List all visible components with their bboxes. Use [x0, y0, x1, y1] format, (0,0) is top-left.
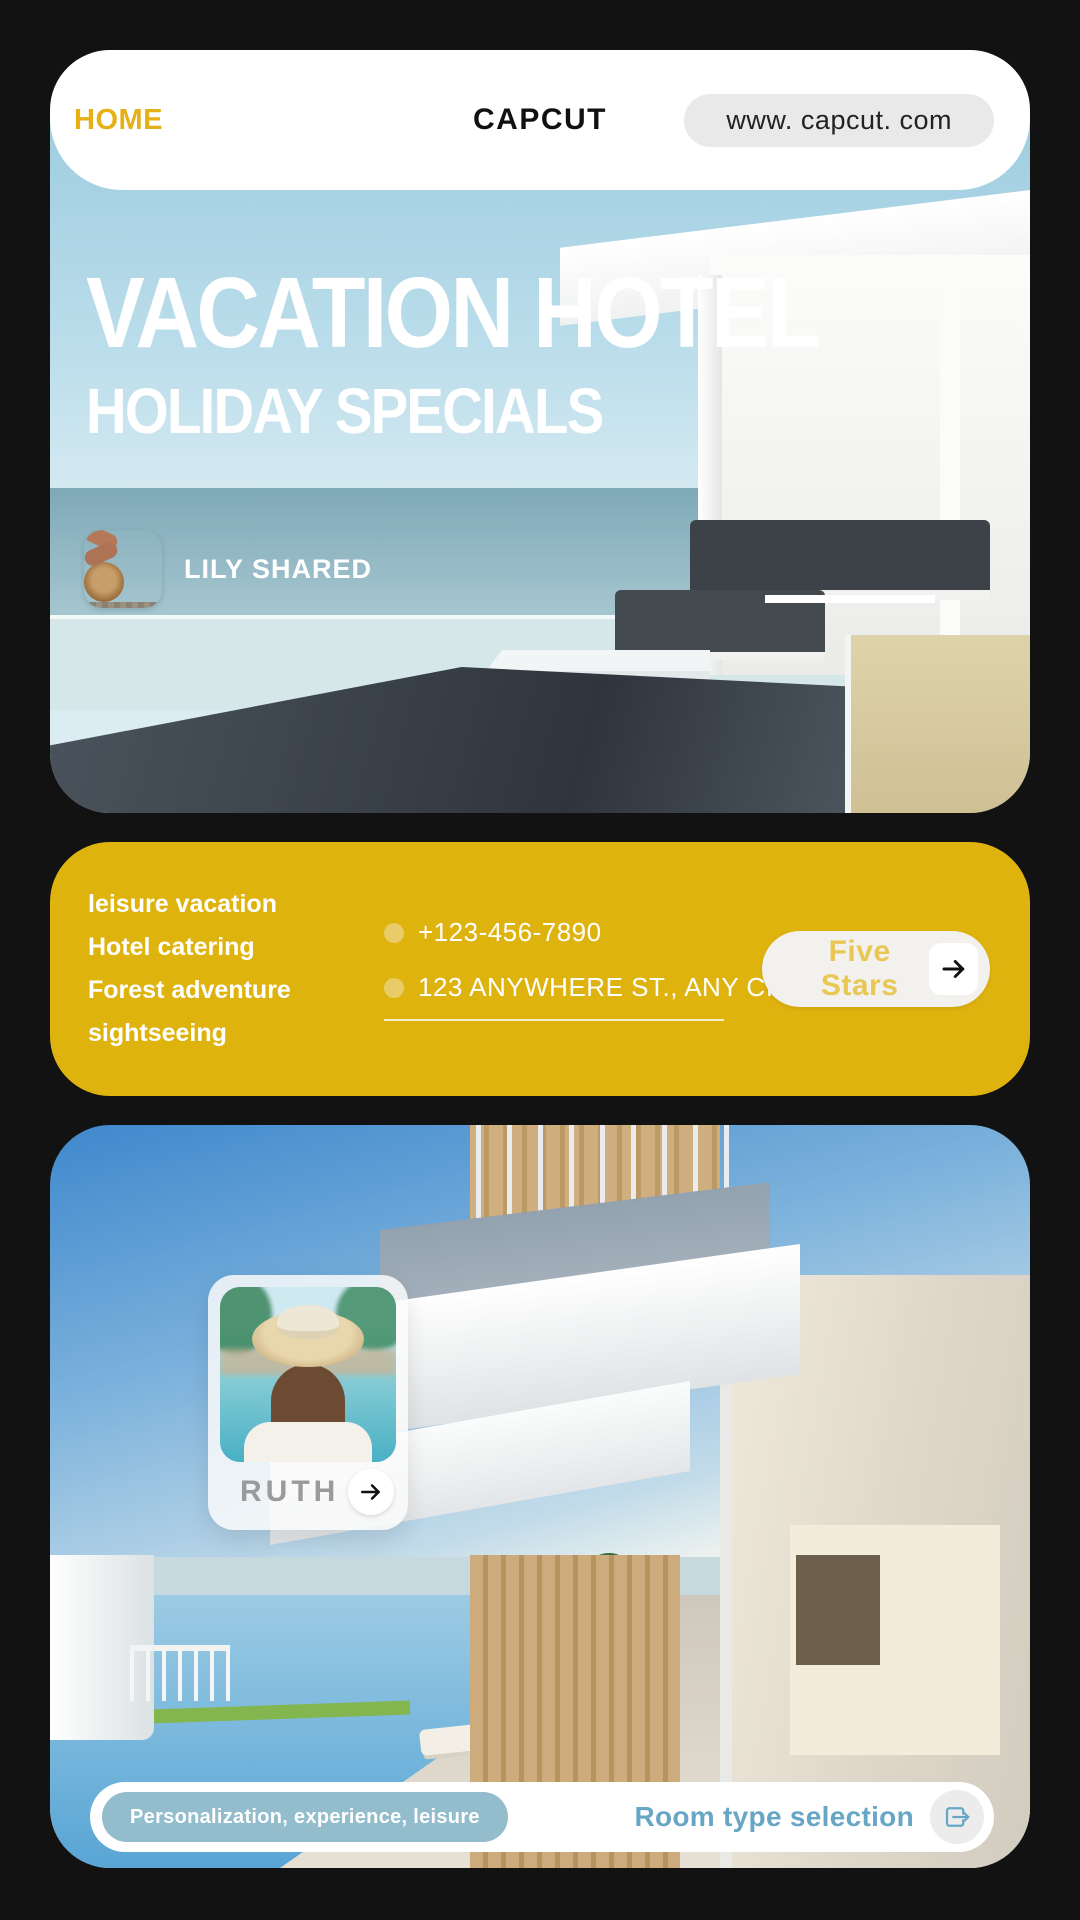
phone-number: +123-456-7890	[418, 917, 602, 948]
arrow-right-icon	[929, 943, 978, 995]
shared-by-label: LILY SHARED	[184, 554, 372, 585]
contact-block: +123-456-7890 123 ANYWHERE ST., ANY CITY	[384, 917, 724, 1021]
arrow-right-icon[interactable]	[348, 1469, 394, 1515]
bullet-dot-icon	[384, 923, 404, 943]
tags-pill: Personalization, experience, leisure	[102, 1792, 508, 1842]
info-card-content: leisure vacation Hotel catering Forest a…	[50, 842, 1030, 1096]
hero-titles: VACATION HOTEL HOLIDAY SPECIALS	[86, 262, 918, 448]
profile-photo-hat-crown	[277, 1305, 339, 1339]
tags-label: Personalization, experience, leisure	[130, 1806, 480, 1829]
top-navbar: HOME CAPCUT www. capcut. com	[50, 50, 1030, 190]
room-selection-label: Room type selection	[634, 1801, 914, 1833]
profile-photo	[220, 1287, 396, 1462]
phone-row: +123-456-7890	[384, 917, 724, 948]
feature-card: RUTH Personalization, experience, leisur…	[50, 1125, 1030, 1868]
info-card: leisure vacation Hotel catering Forest a…	[50, 842, 1030, 1096]
services-list: leisure vacation Hotel catering Forest a…	[88, 883, 350, 1055]
address-row: 123 ANYWHERE ST., ANY CITY	[384, 972, 724, 1021]
service-item: leisure vacation	[88, 883, 350, 926]
hero-table	[765, 595, 935, 603]
profile-footer: RUTH	[208, 1468, 408, 1516]
service-item: sightseeing	[88, 1012, 350, 1055]
profile-card[interactable]: RUTH	[208, 1275, 408, 1530]
building-photo	[50, 1125, 1030, 1868]
nav-home-link[interactable]: HOME	[74, 104, 163, 137]
hero-cabinet	[845, 635, 1030, 813]
building-interior-tv	[796, 1555, 880, 1665]
enter-square-arrow-icon[interactable]	[930, 1790, 984, 1844]
service-item: Hotel catering	[88, 926, 350, 969]
profile-photo-shoulders	[244, 1422, 372, 1462]
address-text: 123 ANYWHERE ST., ANY CITY	[418, 972, 808, 1003]
service-item: Forest adventure	[88, 969, 350, 1012]
hero-sofa	[690, 520, 990, 600]
building-small-railing	[130, 1645, 230, 1701]
bottom-action-bar: Personalization, experience, leisure Roo…	[90, 1782, 994, 1852]
room-selection-link[interactable]: Room type selection	[634, 1790, 984, 1844]
hero-card: HOME CAPCUT www. capcut. com VACATION HO…	[50, 50, 1030, 813]
avatar-photo-straw-hat	[84, 562, 124, 602]
brand-logo-text: CAPCUT	[473, 103, 607, 137]
hero-title: VACATION HOTEL	[86, 262, 818, 364]
hero-subtitle: HOLIDAY SPECIALS	[86, 374, 818, 448]
avatar[interactable]	[84, 530, 162, 608]
profile-name: RUTH	[240, 1475, 339, 1509]
five-stars-label: Five Stars	[790, 935, 929, 1003]
five-stars-button[interactable]: Five Stars	[762, 931, 990, 1007]
website-url-pill[interactable]: www. capcut. com	[684, 94, 994, 147]
hero-column	[940, 255, 960, 675]
page: HOME CAPCUT www. capcut. com VACATION HO…	[0, 0, 1080, 1920]
shared-by-row: LILY SHARED	[84, 530, 372, 608]
bullet-dot-icon	[384, 978, 404, 998]
avatar-photo-chair	[84, 602, 162, 608]
